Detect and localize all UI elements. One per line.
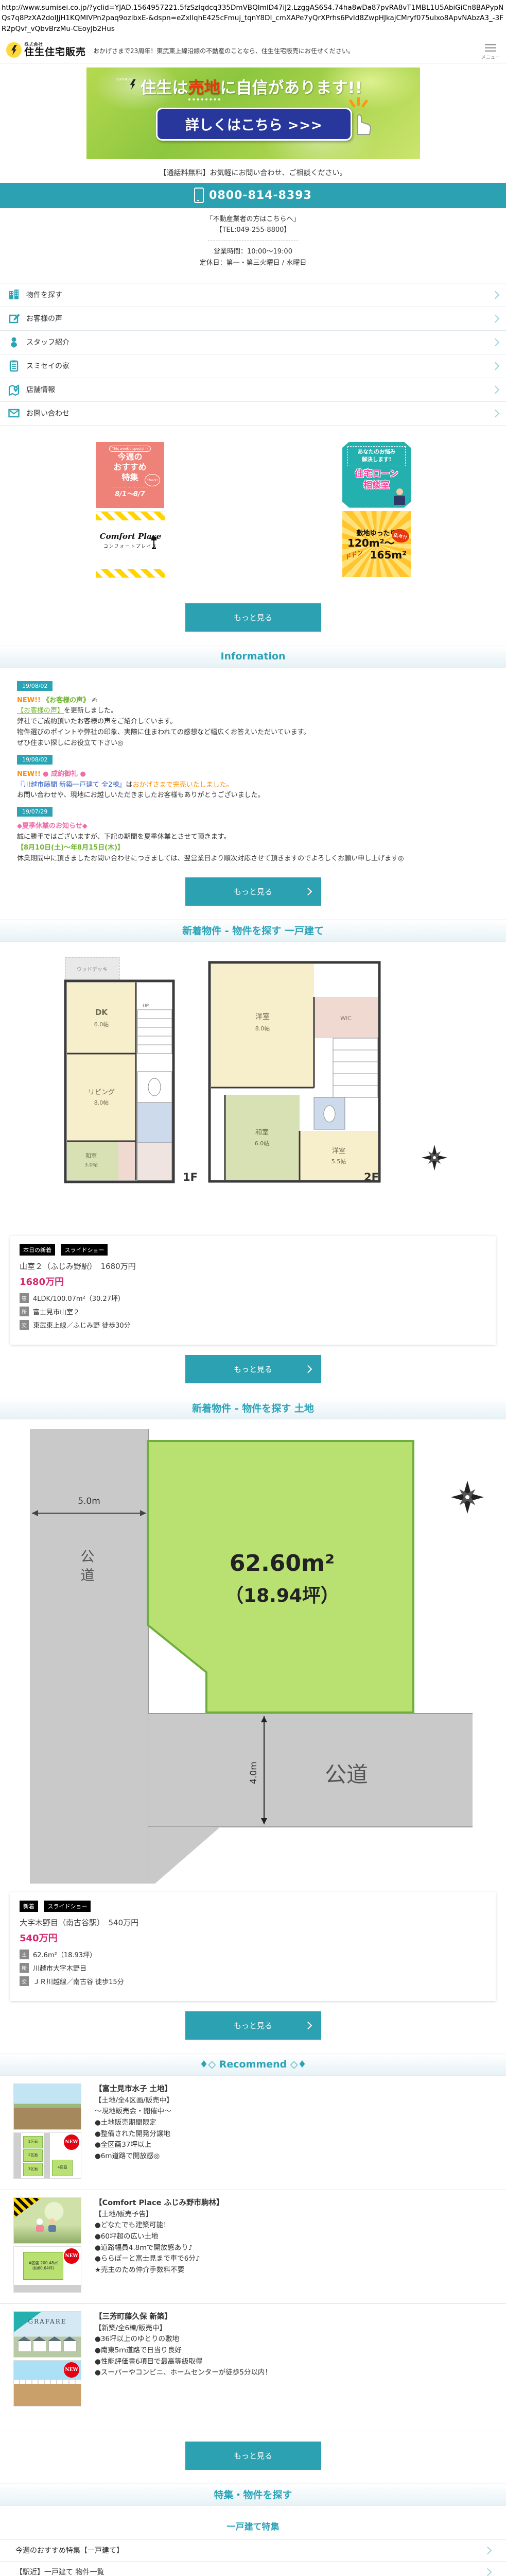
svg-text:（18.94坪）: （18.94坪）: [225, 1585, 339, 1606]
svg-text:和室: 和室: [85, 1152, 97, 1159]
plot-map-thumbnail[interactable]: A区画 200.48㎡ (約60.64坪) NEW: [13, 2246, 81, 2293]
company-name: 住生住宅販売: [24, 46, 86, 58]
hero-headline: 住生は売地に自信があります!!: [141, 75, 362, 98]
promo-loan-consult[interactable]: あなたのお悩み解決します! 住宅ローン 相談室: [342, 442, 411, 508]
property-card-land[interactable]: 新着 スライドショー 大字木野目（南古谷駅） 540万円 540万円 土62.6…: [10, 1892, 496, 2001]
map-pin-icon: [8, 383, 20, 396]
chevron-right-icon: [492, 338, 500, 346]
main-menu: 物件を探す お客様の声 スタッフ紹介 スミセイの家 店舗情報 お問い合わせ: [0, 283, 506, 426]
svg-text:6.0帖: 6.0帖: [94, 1021, 109, 1028]
compose-icon: [8, 312, 20, 325]
header-tagline: おかげさまで23周年！東武東上線沿線の不動産のことなら、住生住宅販売にお任せくだ…: [93, 46, 354, 55]
svg-text:ウッドデッキ: ウッドデッキ: [77, 966, 108, 973]
slideshow-badge: スライドショー: [44, 1901, 91, 1912]
menu-item-staff[interactable]: スタッフ紹介: [0, 331, 506, 354]
yellow-stripe: [96, 569, 165, 578]
hamburger-menu-label: メニュー: [481, 54, 500, 60]
construction-photo-thumbnail[interactable]: NEW: [13, 2360, 81, 2406]
svg-text:5.0m: 5.0m: [78, 1496, 100, 1506]
chevron-right-icon: [492, 314, 500, 323]
menu-item-label: お客様の声: [26, 313, 62, 324]
land-plot-image[interactable]: 62.60m² （18.94坪） 5.0m 公 道 公道 4.0m: [30, 1427, 493, 1887]
spec-tag: 所: [20, 1963, 29, 1973]
property-title[interactable]: 大字木野目（南古谷駅） 540万円: [20, 1917, 486, 1928]
svg-text:WIC: WIC: [340, 1015, 352, 1022]
phone-number: 0800-814-8393: [209, 189, 312, 202]
today-new-badge: 本日の新着: [20, 1244, 55, 1256]
compass-icon: [451, 1481, 484, 1514]
comfort-place-ribbon: [14, 2198, 42, 2218]
property-price: 540万円: [20, 1931, 486, 1944]
promo-more-button[interactable]: もっと見る: [185, 603, 321, 632]
chevron-right-icon: [492, 409, 500, 417]
promo-land-size[interactable]: 広々!! 敷地ゆったり 120m²～ 165m² ドドン: [342, 511, 411, 577]
property-title[interactable]: 山室２（ふじみ野駅） 1680万円: [20, 1261, 486, 1272]
menu-item-label: スタッフ紹介: [26, 337, 69, 347]
information-heading: Information: [0, 645, 506, 668]
feature-heading: 特集・物件を探す: [0, 2483, 506, 2506]
promo-comfort-place[interactable]: Comfort Place コンフォートプレイス: [96, 511, 165, 578]
svg-text:6.0帖: 6.0帖: [254, 1140, 269, 1147]
yellow-stripe: [96, 512, 165, 520]
menu-item-sumisei-house[interactable]: スミセイの家: [0, 354, 506, 378]
plot-map-thumbnail[interactable]: 1区画 2区画 3区画 4区画 NEW: [13, 2132, 81, 2179]
svg-text:4.0m: 4.0m: [249, 1761, 259, 1784]
lamp-icon: [151, 536, 156, 550]
house-feature-list: 今週のおすすめ特集【一戸建て】 【駅近】一戸建て 物件一覧 【即入居可】新築一戸…: [0, 2539, 506, 2576]
promo-ribbon: This week's special !!: [109, 446, 151, 452]
svg-text:和室: 和室: [255, 1128, 268, 1137]
information-more-button[interactable]: もっと見る: [185, 877, 321, 906]
new-badge: NEW: [64, 2362, 79, 2378]
promo-banner-grid: This week's special !! 今週の おすすめ 特集 Check…: [0, 441, 506, 593]
page-url-text: http://www.sumisei.co.jp/?yclid=YJAD.156…: [0, 0, 506, 39]
news-entry: 19/08/02 NEW!! 《お客様の声》 ✍ 【お客様の声】を更新しました。…: [17, 676, 489, 749]
menu-item-contact[interactable]: お問い合わせ: [0, 402, 506, 426]
phone-call-bar[interactable]: 0800-814-8393: [0, 183, 506, 208]
hero-logo-sub: sumisei: [116, 77, 134, 82]
business-hours: 営業時間：10:00～19:00: [0, 246, 506, 258]
menu-item-label: お問い合わせ: [26, 408, 69, 418]
spec-tag: 交: [20, 1320, 29, 1330]
new-badge: NEW: [64, 2248, 79, 2264]
news-date-badge: 19/07/29: [17, 807, 53, 817]
svg-text:リビング: リビング: [88, 1089, 114, 1096]
company-logo[interactable]: 株式会社 住生住宅販売: [6, 42, 86, 58]
svg-text:5.5帖: 5.5帖: [331, 1158, 346, 1165]
svg-text:DK: DK: [95, 1008, 108, 1017]
news-entry: 19/07/29 ◆夏季休業のお知らせ◆ 誠に勝手ではございますが、下記の期間を…: [17, 802, 489, 863]
free-call-note: 【通話料無料】お気軽にお問い合わせ、ご相談ください。: [0, 167, 506, 178]
lightning-logo-icon: [6, 42, 22, 58]
new-land-more-button[interactable]: もっと見る: [185, 2011, 321, 2040]
new-house-more-button[interactable]: もっと見る: [185, 1355, 321, 1383]
customer-voice-link[interactable]: 【お客様の声】: [17, 707, 64, 715]
feature-link-near-station[interactable]: 【駅近】一戸建て 物件一覧: [0, 2562, 506, 2576]
hamburger-menu-button[interactable]: メニュー: [481, 42, 500, 60]
site-header: 株式会社 住生住宅販売 おかげさまで23周年！東武東上線沿線の不動産のことなら、…: [0, 39, 506, 63]
recommend-item[interactable]: 1区画 2区画 3区画 4区画 NEW 【富士見市水子 土地】 【土地/全4区画…: [0, 2076, 506, 2190]
hand-cursor-icon: [350, 109, 372, 135]
kids-photo-thumbnail[interactable]: [13, 2197, 81, 2244]
menu-item-search-property[interactable]: 物件を探す: [0, 283, 506, 307]
smartphone-icon: [194, 188, 204, 203]
hamburger-icon: [485, 44, 496, 45]
svg-text:UP: UP: [143, 1004, 149, 1009]
menu-item-shop-info[interactable]: 店舗情報: [0, 378, 506, 402]
dashed-separator: [208, 241, 298, 241]
hero-banner[interactable]: sumisei 住生は売地に自信があります!! 詳しくはこちら >>>: [86, 67, 420, 159]
hero-detail-button[interactable]: 詳しくはこちら >>>: [156, 108, 352, 141]
floorplan-image[interactable]: ウッドデッキ UP DK 6.0帖 リビング 8.0帖 和室 3.0帖 1F 洋…: [55, 948, 451, 1231]
property-card-house[interactable]: 本日の新着 スライドショー 山室２（ふじみ野駅） 1680万円 1680万円 専…: [10, 1236, 496, 1345]
recommend-heading: ♦◇ Recommend ◇♦: [0, 2053, 506, 2076]
news-date-badge: 19/08/02: [17, 755, 53, 765]
clipboard-icon: [8, 360, 20, 372]
person-icon: [8, 336, 20, 348]
recommend-item[interactable]: GRAFARE NEW 【三芳町藤久保 新築】 【新築/全6棟/販売中】 ●36…: [0, 2303, 506, 2417]
land-photo-thumbnail[interactable]: [13, 2083, 81, 2130]
new-badge: NEW: [64, 2134, 79, 2150]
svg-text:8.0帖: 8.0帖: [94, 1099, 109, 1106]
new-house-heading: 新着物件 - 物件を探す 一戸建て: [0, 919, 506, 942]
holiday: 定休日：第一・第三火曜日 / 水曜日: [0, 258, 506, 269]
property-link[interactable]: 『川越市藤間 新築一戸建て 全2棟』: [17, 781, 126, 789]
chevron-right-icon: [492, 362, 500, 370]
news-list: 19/08/02 NEW!! 《お客様の声》 ✍ 【お客様の声】を更新しました。…: [0, 668, 506, 867]
property-price: 1680万円: [20, 1275, 486, 1288]
chevron-right-icon: [492, 291, 500, 299]
agent-note: 「不動産業者の方はこちらへ」: [0, 214, 506, 225]
feature-link-weekly-house[interactable]: 今週のおすすめ特集【一戸建て】: [0, 2540, 506, 2562]
mail-icon: [8, 407, 20, 419]
spec-tag: 専: [20, 1293, 29, 1303]
promo-weekly-special[interactable]: This week's special !! 今週の おすすめ 特集 Check…: [96, 442, 164, 508]
recommend-more-button[interactable]: もっと見る: [185, 2442, 321, 2470]
check-bubble: Check!: [145, 474, 160, 486]
spec-tag: 所: [20, 1307, 29, 1316]
header-divider: [0, 63, 506, 63]
recommend-item[interactable]: A区画 200.48㎡ (約60.64坪) NEW 【Comfort Place…: [0, 2190, 506, 2303]
svg-text:62.60m²: 62.60m²: [230, 1550, 335, 1577]
house-render-thumbnail[interactable]: GRAFARE: [13, 2311, 81, 2358]
menu-item-label: スミセイの家: [26, 361, 69, 371]
slideshow-badge: スライドショー: [61, 1244, 108, 1256]
news-date-badge: 19/08/02: [17, 681, 53, 691]
house-feature-heading: 一戸建て特集: [0, 2519, 506, 2532]
agent-tel: 【TEL:049-255-8800】: [0, 225, 506, 236]
svg-text:公道: 公道: [325, 1762, 368, 1787]
menu-item-customer-voice[interactable]: お客様の声: [0, 307, 506, 331]
building-icon: [8, 289, 20, 301]
compass-icon: [422, 1145, 447, 1171]
svg-text:1F: 1F: [183, 1171, 198, 1183]
menu-item-label: 店舗情報: [26, 384, 55, 395]
spec-tag: 交: [20, 1976, 29, 1986]
hero-headline-em: 売地: [188, 79, 220, 100]
promo-period: 8/1～8/7: [96, 488, 164, 498]
svg-text:洋室: 洋室: [255, 1012, 270, 1021]
hero-logo: sumisei: [116, 77, 134, 82]
svg-text:2F: 2F: [364, 1171, 379, 1183]
consultant-figure: [393, 488, 406, 506]
pen-emoji: ✍: [92, 697, 97, 704]
new-badge: 新着: [20, 1901, 38, 1912]
spec-tag: 土: [20, 1950, 29, 1959]
menu-item-label: 物件を探す: [26, 290, 62, 300]
svg-text:公: 公: [81, 1549, 95, 1565]
new-land-heading: 新着物件 - 物件を探す 土地: [0, 1397, 506, 1419]
news-entry: 19/08/02 NEW!! ● 成約御礼 ● 『川越市藤間 新築一戸建て 全2…: [17, 750, 489, 801]
chevron-right-icon: [492, 385, 500, 394]
svg-text:8.0帖: 8.0帖: [255, 1025, 270, 1032]
svg-text:3.0帖: 3.0帖: [84, 1161, 98, 1168]
svg-text:道: 道: [81, 1568, 95, 1584]
svg-text:洋室: 洋室: [331, 1147, 345, 1155]
